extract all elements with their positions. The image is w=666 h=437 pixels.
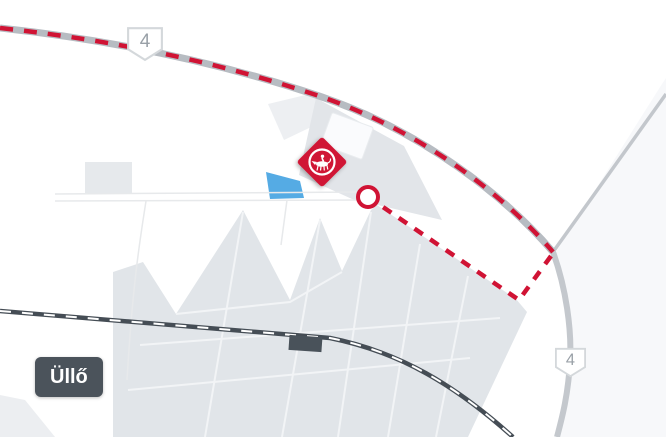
station-building	[288, 335, 322, 352]
map-canvas[interactable]: 4 4 Üllő	[0, 0, 666, 437]
road-shield-4-top-label: 4	[140, 31, 151, 52]
route-4-road	[0, 28, 553, 252]
town-label-ullo: Üllő	[35, 357, 103, 397]
urban-wedge-bottom-left	[0, 395, 55, 437]
pond	[266, 172, 304, 199]
road-shield-4-bottom: 4	[554, 347, 587, 378]
field-block	[85, 162, 132, 193]
road-shield-4-top: 4	[126, 26, 164, 62]
route-dashes-on-road	[0, 28, 553, 252]
road-shield-4-bottom-label: 4	[566, 351, 575, 369]
map-tint-east	[556, 78, 666, 437]
route-endpoint-circle[interactable]	[358, 187, 378, 207]
